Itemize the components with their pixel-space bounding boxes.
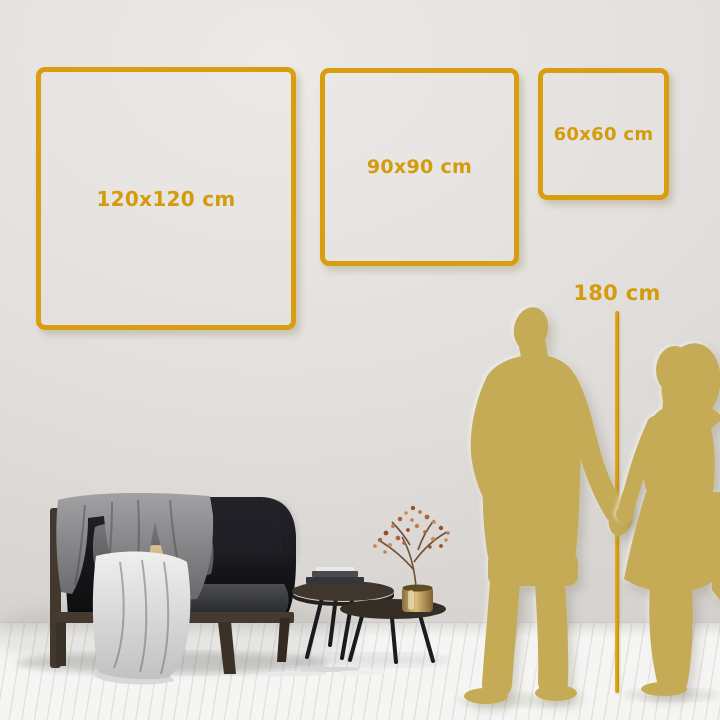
frame-60-label: 60x60 cm (554, 124, 654, 145)
frame-90-label: 90x90 cm (367, 156, 472, 178)
height-reference-label: 180 cm (555, 281, 679, 305)
branch-flowers (373, 506, 450, 554)
brass-vase (402, 585, 433, 613)
size-guide-scene: 120x120 cm 90x90 cm 60x60 cm 180 cm (0, 0, 720, 720)
silhouette-man (464, 304, 637, 704)
books-on-table (306, 567, 364, 584)
frame-120x120: 120x120 cm (36, 67, 296, 330)
frame-90x90: 90x90 cm (320, 68, 519, 266)
frame-60x60: 60x60 cm (538, 68, 669, 200)
woman-skirt (624, 492, 720, 592)
silhouette-woman (616, 339, 720, 696)
frame-120-label: 120x120 cm (96, 187, 235, 211)
woman-leg (649, 585, 693, 690)
dried-branch (380, 520, 447, 586)
